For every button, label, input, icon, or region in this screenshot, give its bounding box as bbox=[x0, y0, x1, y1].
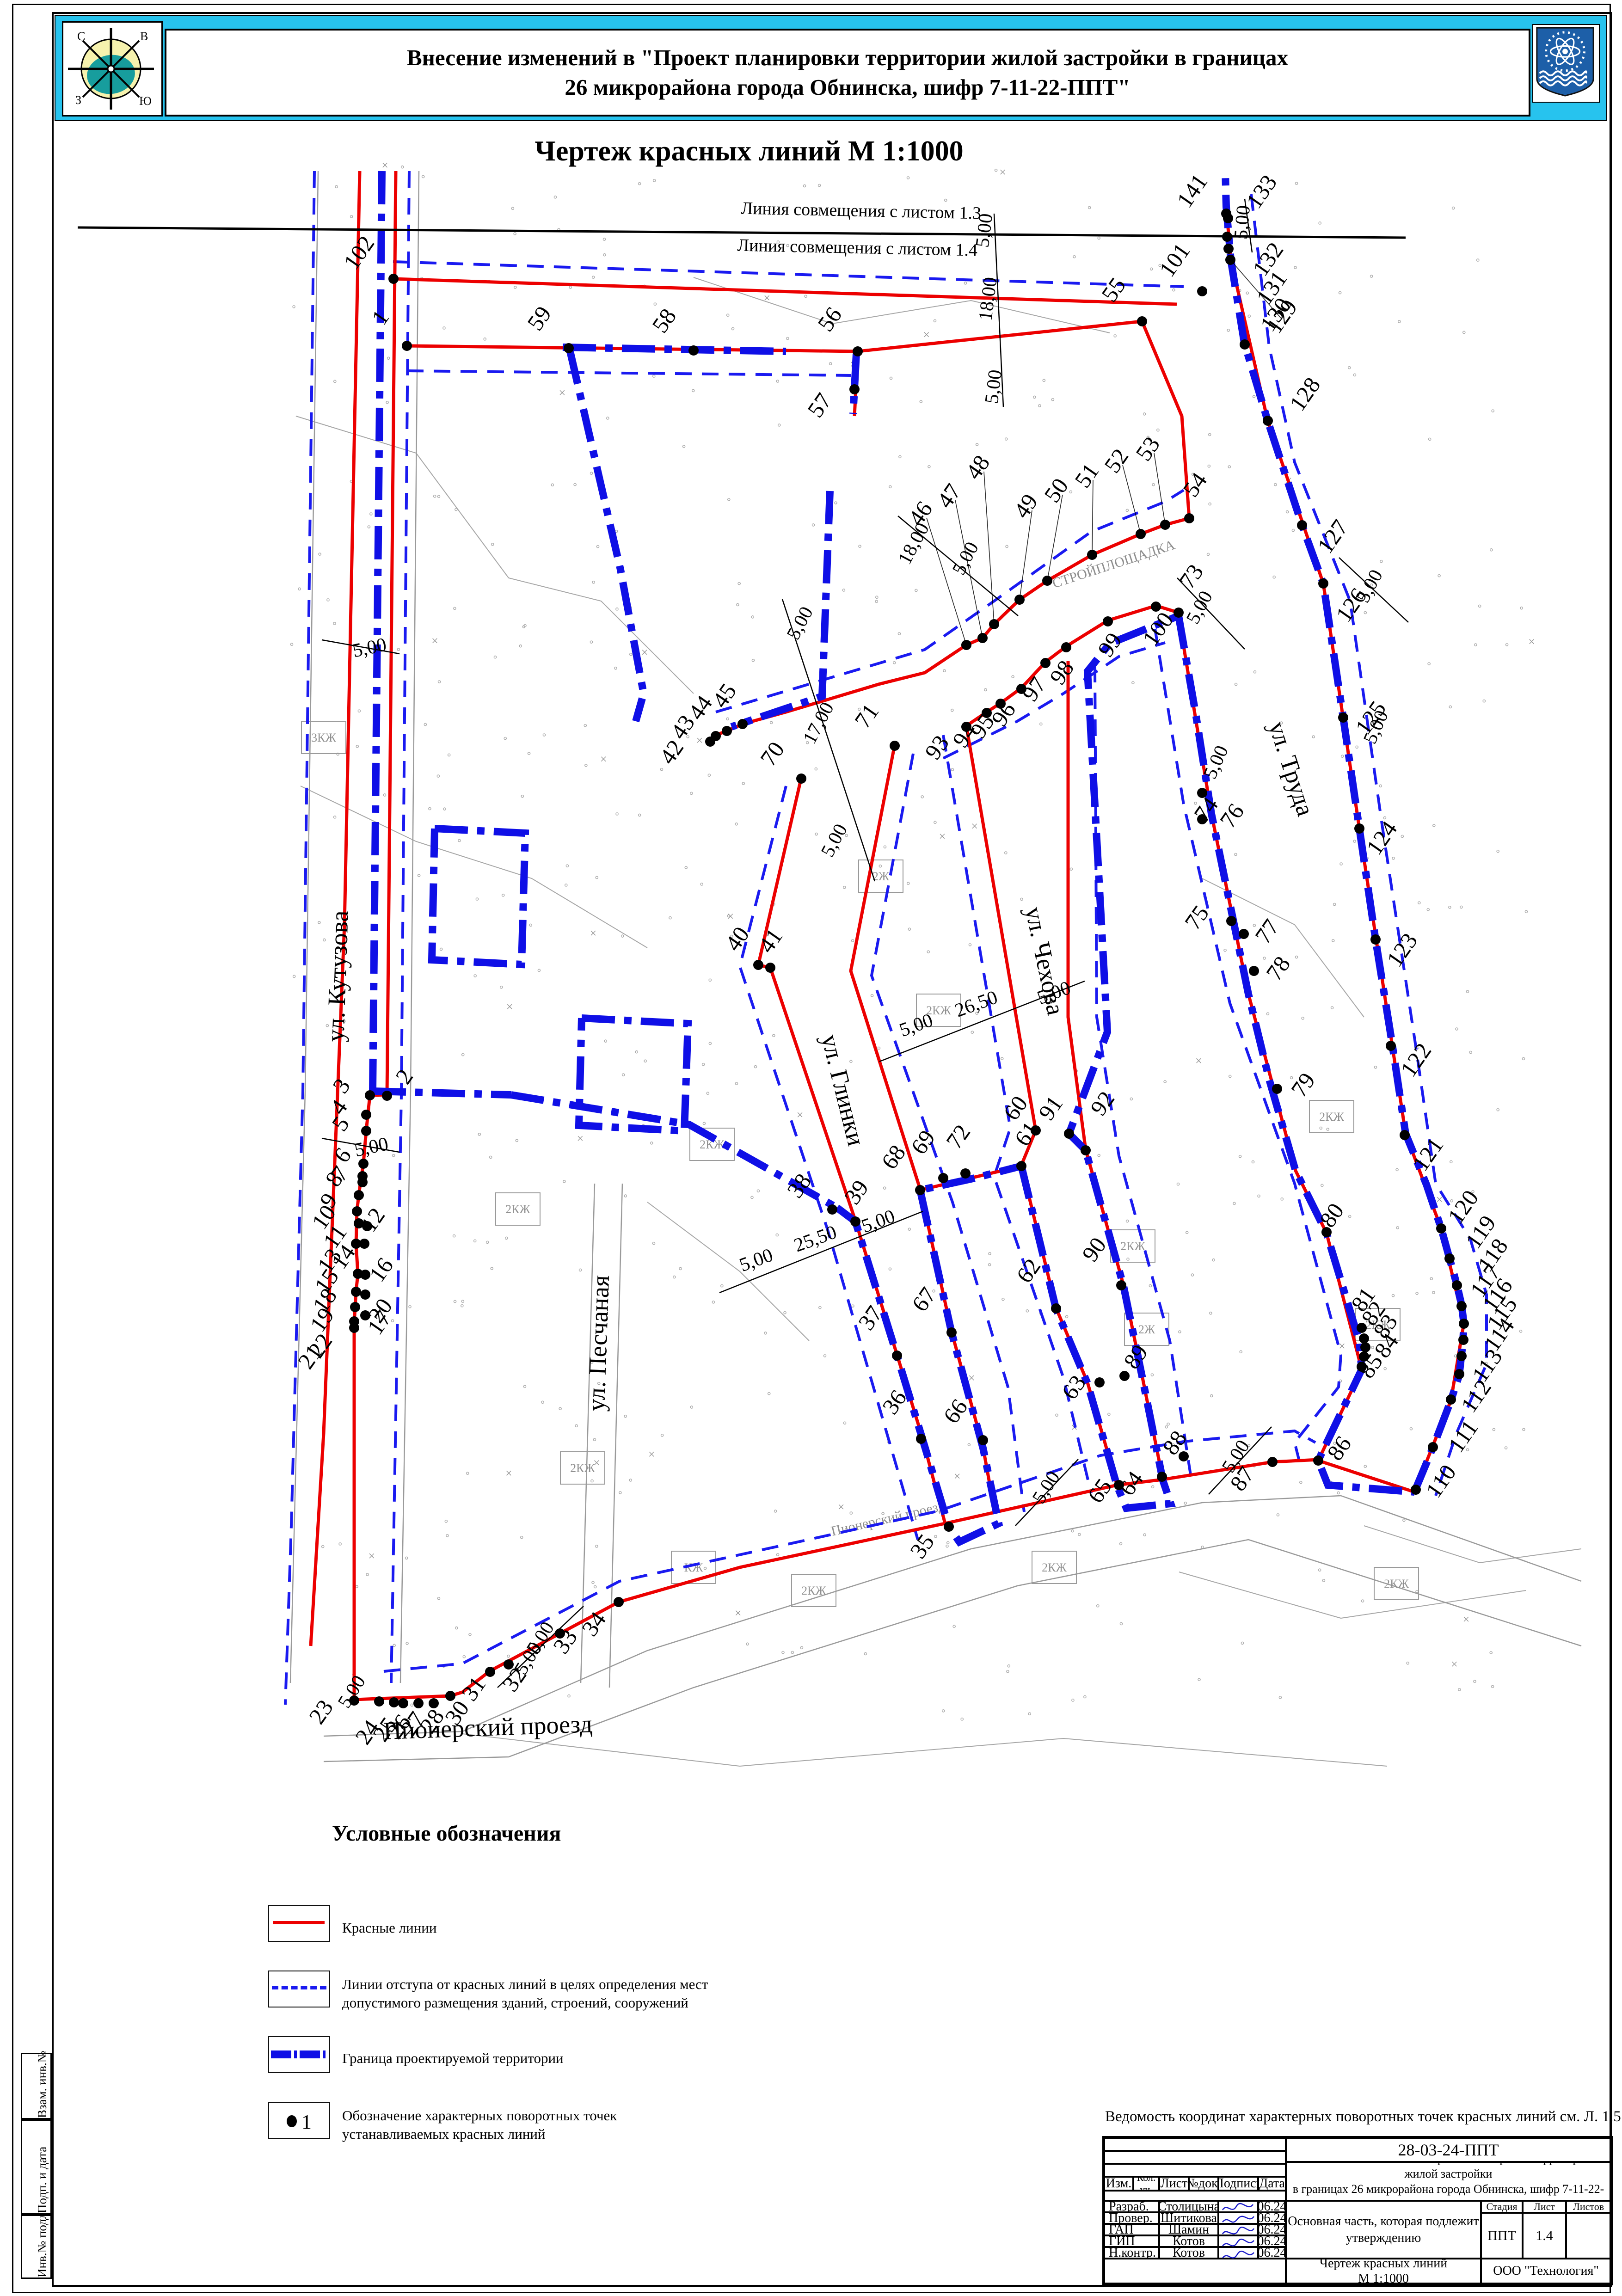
stamp-sheets-col: Листов bbox=[1566, 2201, 1611, 2213]
turn-point-dot bbox=[413, 1698, 424, 1708]
turn-point-dot bbox=[1436, 1223, 1446, 1234]
topo-dot bbox=[731, 327, 734, 330]
turn-point-number: 97 bbox=[1017, 672, 1051, 706]
topo-dot bbox=[976, 443, 978, 446]
topo-dot bbox=[1281, 1198, 1283, 1200]
turn-point-dot bbox=[1386, 1041, 1396, 1051]
turn-point-number: 48 bbox=[960, 450, 995, 484]
topo-dot bbox=[934, 1535, 937, 1538]
topo-dot bbox=[474, 1240, 476, 1242]
building-label: 3КЖ bbox=[311, 731, 336, 744]
topo-dot bbox=[1353, 840, 1356, 842]
topo-dot bbox=[1235, 683, 1237, 685]
topo-dot bbox=[786, 337, 789, 339]
topo-dot bbox=[1253, 395, 1255, 398]
topo-dot bbox=[624, 1415, 627, 1418]
turn-point-dot bbox=[614, 1597, 624, 1607]
turn-point-dot bbox=[353, 1269, 363, 1279]
topo-dot bbox=[635, 1051, 638, 1053]
stamp-doc-code: 28-03-24-ППТ bbox=[1286, 2138, 1611, 2162]
topo-dot bbox=[616, 813, 618, 815]
topo-dot bbox=[462, 1054, 464, 1056]
topo-dot bbox=[1227, 329, 1229, 332]
turn-point-dot bbox=[961, 640, 971, 650]
topo-dot bbox=[529, 924, 532, 926]
turn-point-number: 51 bbox=[1069, 459, 1104, 492]
building-label: 2КЖ bbox=[1042, 1561, 1067, 1574]
stamp-stage-col: Стадия bbox=[1481, 2201, 1523, 2213]
legend-sample-offset-lines bbox=[268, 1971, 330, 2007]
topo-dot bbox=[791, 1651, 793, 1653]
topo-dot bbox=[920, 400, 922, 403]
stamp-name-2: Шамин bbox=[1159, 2224, 1218, 2235]
stamp-stage-value: ППТ bbox=[1481, 2213, 1523, 2259]
topo-dot bbox=[1522, 1057, 1524, 1060]
topo-dot bbox=[406, 1642, 408, 1645]
turn-point-dot bbox=[1226, 916, 1236, 926]
topo-dot bbox=[1401, 835, 1403, 837]
topo-dot bbox=[411, 1704, 413, 1706]
turn-point-number: 49 bbox=[1008, 489, 1043, 523]
topo-dot bbox=[554, 196, 556, 198]
turn-point-number: 71 bbox=[849, 699, 884, 733]
turn-point-number: 72 bbox=[941, 1120, 976, 1154]
topo-dot bbox=[434, 495, 436, 497]
topo-dot bbox=[1001, 1057, 1003, 1060]
stamp-col-list: Лист bbox=[1159, 2177, 1189, 2191]
stamp-company: ООО "Технология" bbox=[1481, 2259, 1611, 2284]
topo-dot bbox=[461, 1305, 463, 1307]
turn-point-number: 3 bbox=[327, 1074, 355, 1098]
topo-dot bbox=[1302, 1017, 1304, 1019]
topo-dot bbox=[907, 882, 909, 884]
topo-dot bbox=[614, 667, 617, 669]
topo-dot bbox=[928, 466, 930, 468]
topo-dot bbox=[585, 764, 587, 767]
topo-dot bbox=[1333, 903, 1336, 906]
topo-dot bbox=[1490, 1651, 1492, 1654]
turn-point-dot bbox=[1042, 576, 1052, 586]
topo-dot bbox=[1132, 681, 1134, 684]
topo-dot bbox=[1454, 1355, 1456, 1357]
topo-dot bbox=[1026, 1310, 1028, 1312]
turn-point-number: 16 bbox=[364, 1253, 399, 1287]
topo-dot bbox=[1007, 1670, 1009, 1673]
topo-dot bbox=[1186, 1231, 1188, 1234]
topo-dot bbox=[1466, 990, 1468, 993]
building-label: 2КЖ bbox=[801, 1584, 826, 1597]
turn-point-dot bbox=[1354, 823, 1364, 834]
topo-dot bbox=[1523, 1428, 1525, 1430]
topo-cross: × bbox=[559, 386, 566, 399]
topo-dot bbox=[893, 662, 896, 664]
topo-dot bbox=[927, 951, 929, 953]
topo-dot bbox=[829, 362, 832, 365]
topo-dot bbox=[563, 1180, 565, 1183]
topo-dot bbox=[318, 921, 320, 924]
topo-dot bbox=[1008, 1665, 1010, 1667]
topo-dot bbox=[1410, 1428, 1412, 1430]
topo-dot bbox=[1210, 1394, 1213, 1397]
topo-dot bbox=[523, 1385, 526, 1387]
topo-dot bbox=[1033, 396, 1036, 398]
stamp-section-line1: Основная часть, которая подлежит bbox=[1288, 2213, 1479, 2230]
topo-dot bbox=[1241, 1642, 1243, 1644]
existing-road-edge bbox=[581, 1184, 595, 1683]
topo-dot bbox=[1228, 466, 1230, 468]
topo-dot bbox=[1429, 438, 1431, 440]
turn-point-number: 101 bbox=[1154, 238, 1195, 282]
topo-dot bbox=[682, 445, 685, 448]
topo-cross: × bbox=[600, 752, 607, 766]
topo-dot bbox=[387, 357, 390, 359]
topo-dot bbox=[1179, 1331, 1181, 1333]
stamp-project-line2: в границах 26 микрорайона города Обнинск… bbox=[1290, 2181, 1607, 2201]
topo-dot bbox=[429, 807, 431, 810]
topo-dot bbox=[322, 1545, 324, 1547]
stamp-sheet-col: Лист bbox=[1523, 2201, 1566, 2213]
topo-cross: × bbox=[648, 1448, 655, 1461]
topo-dot bbox=[293, 306, 295, 308]
dimension-label: 5,00 bbox=[948, 539, 983, 578]
turn-point-dot bbox=[351, 1287, 361, 1297]
topo-dot bbox=[709, 1042, 711, 1044]
topo-dot bbox=[1006, 545, 1008, 547]
turn-point-dot bbox=[402, 341, 412, 351]
turn-point-number: 41 bbox=[753, 924, 788, 958]
topo-dot bbox=[673, 1276, 676, 1278]
topo-dot bbox=[1433, 824, 1435, 827]
turn-point-number: 39 bbox=[839, 1175, 874, 1209]
point-leader-line bbox=[1123, 465, 1141, 534]
topo-dot bbox=[1073, 256, 1075, 258]
topo-dot bbox=[1246, 292, 1248, 294]
red-line-sample bbox=[273, 1921, 325, 1924]
topo-dot bbox=[728, 498, 730, 501]
topo-dot bbox=[1266, 1013, 1269, 1015]
topo-dot bbox=[1332, 939, 1334, 942]
turn-point-number: 35 bbox=[905, 1529, 940, 1563]
topo-dot bbox=[490, 1156, 492, 1158]
topo-dot bbox=[737, 603, 739, 606]
topo-dot bbox=[1088, 206, 1091, 209]
point-leader-line bbox=[1020, 510, 1032, 600]
topo-dot bbox=[679, 1267, 682, 1270]
map-gray-note: Пионерский проезд bbox=[829, 1498, 946, 1539]
topo-dot bbox=[454, 607, 456, 609]
topo-dot bbox=[592, 276, 595, 278]
turn-point-number: 67 bbox=[907, 1283, 941, 1316]
topo-dot bbox=[1040, 723, 1042, 725]
topo-dot bbox=[596, 546, 599, 548]
topo-dot bbox=[805, 295, 807, 297]
topo-dot bbox=[776, 1553, 779, 1556]
topo-dot bbox=[1418, 902, 1420, 904]
topo-contour-line bbox=[647, 1202, 809, 1341]
topo-dot bbox=[890, 377, 892, 379]
topo-dot bbox=[1165, 1426, 1167, 1428]
turn-point-dot bbox=[1446, 1394, 1456, 1405]
legend-sample-red-lines bbox=[268, 1905, 330, 1942]
turn-point-number: 91 bbox=[1033, 1091, 1068, 1125]
turn-point-dot bbox=[737, 719, 748, 729]
topo-dot bbox=[943, 669, 946, 672]
topo-dot bbox=[1463, 331, 1465, 333]
topo-dot bbox=[1210, 1312, 1212, 1314]
topo-contour-line bbox=[1202, 878, 1364, 1017]
topo-dot bbox=[448, 754, 450, 756]
topo-dot bbox=[437, 1597, 440, 1600]
topo-dot bbox=[1479, 605, 1481, 607]
topo-dot bbox=[624, 1195, 627, 1197]
topo-dot bbox=[1320, 1127, 1322, 1129]
topo-dot bbox=[908, 928, 910, 930]
turn-point-dot bbox=[853, 346, 863, 356]
topo-dot bbox=[1152, 1486, 1154, 1488]
turn-point-number: 121 bbox=[1407, 1132, 1449, 1176]
topo-dot bbox=[803, 184, 805, 187]
topo-dot bbox=[393, 1154, 395, 1157]
topo-dot bbox=[1492, 410, 1494, 412]
topo-dot bbox=[1126, 1220, 1128, 1222]
legend-label-offset-2: допустимого размещения зданий, строений,… bbox=[342, 1994, 688, 2012]
topo-cross: × bbox=[971, 820, 978, 833]
topo-cross: × bbox=[968, 1371, 975, 1385]
topo-dot bbox=[1340, 863, 1342, 865]
topo-dot bbox=[1364, 1465, 1366, 1467]
offset-dashed-line bbox=[716, 490, 1184, 712]
topo-dot bbox=[358, 710, 360, 712]
red-line bbox=[393, 279, 1177, 304]
turn-point-dot bbox=[485, 1667, 495, 1677]
dimension-label: 5,00 bbox=[972, 212, 997, 249]
topo-dot bbox=[1149, 1284, 1151, 1287]
topo-dot bbox=[455, 1627, 458, 1629]
topo-dot bbox=[1043, 379, 1045, 381]
turn-point-dot bbox=[1225, 255, 1235, 265]
offset-dashed-line bbox=[285, 171, 314, 1705]
topo-dot bbox=[639, 814, 641, 816]
topo-dot bbox=[859, 545, 861, 547]
stamp-col-koluch: Кол. уч. bbox=[1133, 2177, 1159, 2191]
topo-dot bbox=[778, 424, 780, 426]
topo-dot bbox=[401, 166, 404, 168]
turn-point-number: 90 bbox=[1077, 1233, 1112, 1266]
stamp-section-line2: утверждению bbox=[1288, 2230, 1479, 2247]
topo-dot bbox=[1312, 736, 1315, 738]
topo-dot bbox=[652, 1242, 655, 1245]
title-block: Изм. Кол. уч. Лист №док. Подпись Дата Ра… bbox=[1102, 2136, 1613, 2285]
topo-dot bbox=[592, 581, 595, 583]
topo-dot bbox=[947, 1541, 949, 1544]
topo-dot bbox=[1119, 1542, 1122, 1545]
topo-dot bbox=[1392, 1295, 1394, 1297]
stamp-sheet-value: 1.4 bbox=[1523, 2213, 1566, 2259]
topo-dot bbox=[1274, 484, 1277, 486]
topo-dot bbox=[1143, 1534, 1146, 1536]
dimension-label: 25,50 bbox=[791, 1222, 840, 1257]
turn-point-dot-sample bbox=[287, 2115, 297, 2127]
topo-dot bbox=[639, 183, 641, 185]
topo-dot bbox=[1469, 1051, 1472, 1053]
topo-dot bbox=[889, 485, 891, 488]
stamp-role-0: Разраб. bbox=[1104, 2201, 1159, 2212]
topo-dot bbox=[521, 795, 523, 798]
topo-dot bbox=[590, 472, 592, 474]
topo-dot bbox=[1432, 1291, 1435, 1294]
topo-dot bbox=[800, 1646, 803, 1649]
topo-cross: × bbox=[1463, 1613, 1470, 1626]
building-label: 2КЖ bbox=[1120, 1240, 1145, 1253]
topo-dot bbox=[707, 1092, 709, 1094]
point-leader-line bbox=[1154, 453, 1165, 525]
turn-point-dot bbox=[1031, 1125, 1041, 1136]
topo-dot bbox=[1427, 909, 1429, 911]
topo-dot bbox=[964, 282, 966, 284]
topo-dot bbox=[1263, 957, 1266, 959]
turn-point-dot bbox=[978, 1435, 988, 1445]
dimension-label: 5,00 bbox=[859, 1206, 898, 1237]
topo-dot bbox=[1438, 575, 1440, 577]
topo-dot bbox=[418, 874, 420, 877]
topo-dot bbox=[702, 1063, 705, 1066]
stamp-role-1: Провер. bbox=[1104, 2212, 1159, 2224]
topo-dot bbox=[327, 599, 329, 601]
topo-cross: × bbox=[590, 927, 597, 940]
turn-point-dot bbox=[1184, 513, 1194, 523]
turn-point-number: 111 bbox=[1443, 1415, 1483, 1457]
topo-dot bbox=[823, 1355, 826, 1357]
turn-point-number: 73 bbox=[1174, 559, 1209, 593]
turn-point-number: 57 bbox=[802, 388, 837, 422]
turn-point-number: 77 bbox=[1250, 915, 1284, 948]
topo-dot bbox=[1038, 405, 1041, 407]
turn-point-dot bbox=[938, 1173, 948, 1183]
topo-dot bbox=[1028, 1713, 1031, 1715]
topo-dot bbox=[1070, 868, 1072, 870]
topo-dot bbox=[504, 737, 506, 739]
territory-boundary-line bbox=[1021, 616, 1179, 1508]
turn-point-dot bbox=[915, 1185, 925, 1195]
offset-dashed-line bbox=[1155, 629, 1341, 1461]
topo-dot bbox=[864, 1652, 866, 1655]
topo-dot bbox=[773, 1034, 775, 1037]
turn-point-dot bbox=[1318, 578, 1328, 589]
topo-dot bbox=[1120, 1622, 1122, 1625]
turn-point-dot bbox=[352, 1206, 362, 1216]
turn-point-dot bbox=[1061, 642, 1071, 652]
turn-point-dot bbox=[946, 1327, 957, 1338]
topo-dot bbox=[915, 589, 917, 591]
topo-contour-line bbox=[462, 1734, 1387, 1766]
turn-point-dot bbox=[705, 737, 715, 747]
topo-dot bbox=[951, 709, 953, 712]
dimension-label: 5,00 bbox=[1182, 588, 1217, 627]
topo-dot bbox=[889, 1268, 891, 1270]
topo-cross: × bbox=[923, 328, 930, 342]
topo-dot bbox=[575, 1424, 578, 1427]
topo-dot bbox=[368, 526, 370, 528]
topo-dot bbox=[1173, 289, 1175, 291]
topo-dot bbox=[1416, 1590, 1418, 1593]
dimension-label: 5,00 bbox=[1230, 204, 1254, 240]
topo-dot bbox=[1143, 413, 1146, 415]
legend-sample-boundary bbox=[268, 2036, 330, 2073]
topo-dot bbox=[494, 656, 496, 658]
topo-dot bbox=[1407, 1662, 1409, 1664]
topo-dot bbox=[538, 969, 540, 971]
topo-dot bbox=[818, 184, 821, 186]
topo-dot bbox=[1286, 510, 1289, 513]
topo-dot bbox=[569, 286, 571, 289]
turn-point-dot bbox=[1040, 658, 1051, 668]
turn-point-dot bbox=[765, 963, 775, 973]
topo-dot bbox=[393, 1644, 395, 1646]
turn-point-dot bbox=[1016, 1161, 1026, 1171]
topo-dot bbox=[1012, 675, 1014, 678]
topo-dot bbox=[334, 380, 336, 382]
topo-dot bbox=[852, 939, 854, 942]
turn-point-dot bbox=[1137, 316, 1147, 326]
building-label: 2КЖ bbox=[1384, 1577, 1409, 1590]
topo-dot bbox=[1321, 1184, 1323, 1186]
turn-point-number: 123 bbox=[1382, 928, 1423, 971]
topo-dot bbox=[1209, 503, 1211, 505]
topo-dot bbox=[644, 1060, 646, 1062]
topo-dot bbox=[1005, 438, 1008, 440]
turn-point-number: 102 bbox=[338, 231, 380, 274]
offset-line-sample bbox=[272, 1986, 326, 1989]
topo-dot bbox=[1078, 1533, 1081, 1535]
topo-dot bbox=[884, 1187, 886, 1189]
topo-cross: × bbox=[696, 734, 703, 747]
dimension-label: 5,00 bbox=[334, 1672, 370, 1712]
topo-cross: × bbox=[939, 829, 946, 843]
turn-point-dot bbox=[1239, 929, 1249, 939]
turn-point-dot bbox=[1103, 616, 1113, 626]
stamp-date-2: 06.24 bbox=[1258, 2224, 1286, 2235]
topo-dot bbox=[290, 643, 293, 645]
topo-dot bbox=[1497, 850, 1499, 853]
topo-dot bbox=[971, 1031, 973, 1033]
topo-cross: × bbox=[505, 1467, 512, 1480]
topo-dot bbox=[850, 1512, 852, 1514]
topo-dot bbox=[467, 1472, 469, 1474]
topo-dot bbox=[621, 935, 624, 937]
turn-point-dot bbox=[357, 1171, 368, 1181]
topo-dot bbox=[1327, 1128, 1329, 1130]
topo-dot bbox=[445, 1520, 447, 1522]
stamp-role-4: Н.контр. bbox=[1104, 2247, 1159, 2259]
turn-point-dot bbox=[1051, 1303, 1061, 1314]
turn-point-dot bbox=[916, 1434, 926, 1444]
topo-dot bbox=[945, 199, 947, 202]
topo-dot bbox=[692, 389, 694, 392]
turn-point-dot bbox=[349, 1695, 359, 1706]
stamp-sheets-value bbox=[1566, 2213, 1611, 2259]
topo-dot bbox=[505, 1237, 508, 1239]
topo-dot bbox=[486, 1241, 489, 1243]
turn-point-number: 89 bbox=[1118, 1340, 1153, 1374]
turn-point-number: 59 bbox=[522, 301, 557, 335]
topo-dot bbox=[1239, 1155, 1241, 1158]
topo-dot bbox=[568, 1695, 570, 1697]
topo-dot bbox=[437, 495, 440, 497]
topo-dot bbox=[366, 1573, 369, 1576]
topo-dot bbox=[565, 884, 567, 886]
topo-dot bbox=[476, 898, 478, 900]
legend-label-points-1: Обозначение характерных поворотных точек bbox=[342, 2106, 617, 2125]
